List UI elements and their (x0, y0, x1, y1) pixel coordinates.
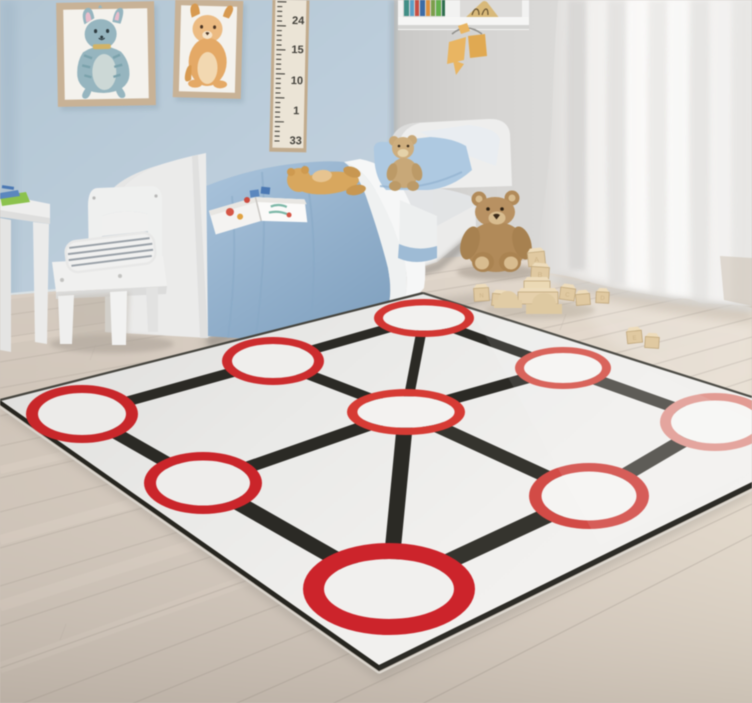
svg-text:24: 24 (292, 15, 305, 27)
svg-text:N: N (479, 293, 484, 299)
svg-text:1: 1 (293, 105, 299, 117)
svg-text:33: 33 (289, 135, 301, 147)
svg-text:E: E (632, 335, 637, 341)
svg-text:10: 10 (291, 75, 303, 87)
svg-text:15: 15 (291, 44, 303, 56)
